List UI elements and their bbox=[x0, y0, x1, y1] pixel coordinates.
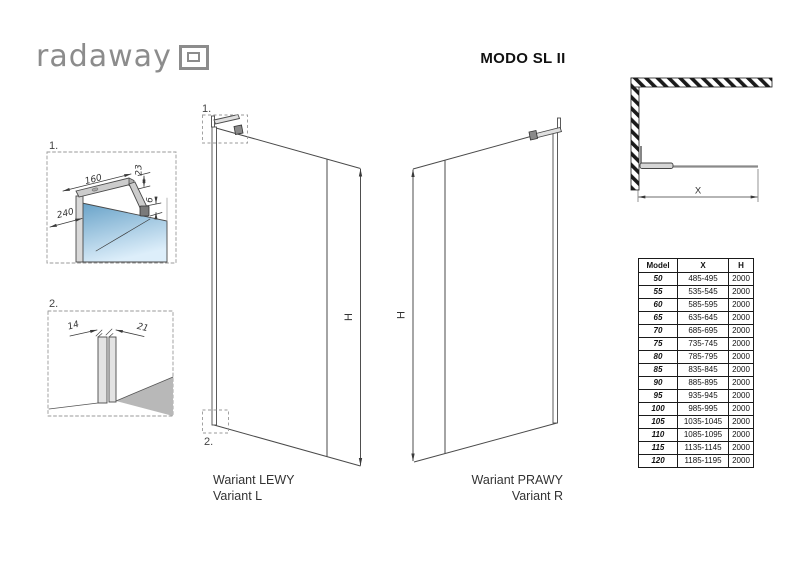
detail-1-drawing: 1. 160 23 240 bbox=[47, 140, 176, 263]
caption-variant-right-en: Variant R bbox=[420, 489, 563, 505]
dim-label-21: 21 bbox=[136, 322, 150, 334]
x-cell: 1085-1095 bbox=[678, 429, 729, 442]
dim-label-x: X bbox=[695, 186, 702, 197]
h-cell: 2000 bbox=[729, 325, 754, 338]
model-cell: 55 bbox=[639, 286, 678, 299]
h-cell: 2000 bbox=[729, 286, 754, 299]
x-cell: 1135-1145 bbox=[678, 442, 729, 455]
wall-hatch-vertical bbox=[631, 78, 639, 190]
glass-clamp bbox=[140, 206, 149, 216]
caption-variant-left-en: Variant L bbox=[213, 489, 295, 505]
h-cell: 2000 bbox=[729, 416, 754, 429]
model-cell: 90 bbox=[639, 377, 678, 390]
table-row: 95935-9452000 bbox=[639, 390, 754, 403]
caption-variant-right: Wariant PRAWY Variant R bbox=[420, 473, 563, 504]
table-row: 50485-4952000 bbox=[639, 273, 754, 286]
wall-profile bbox=[76, 196, 83, 262]
table-row: 75735-7452000 bbox=[639, 338, 754, 351]
detail-2-drawing: 2. 14 21 bbox=[48, 298, 173, 416]
model-cell: 110 bbox=[639, 429, 678, 442]
h-cell: 2000 bbox=[729, 364, 754, 377]
x-cell: 485-495 bbox=[678, 273, 729, 286]
model-cell: 115 bbox=[639, 442, 678, 455]
x-cell: 1035-1045 bbox=[678, 416, 729, 429]
model-cell: 50 bbox=[639, 273, 678, 286]
x-cell: 885-895 bbox=[678, 377, 729, 390]
col-header-model: Model bbox=[639, 259, 678, 273]
x-cell: 785-795 bbox=[678, 351, 729, 364]
dim-label-14: 14 bbox=[67, 320, 81, 333]
table-row: 85835-8452000 bbox=[639, 364, 754, 377]
bottom-profile-right bbox=[109, 337, 116, 402]
x-cell: 535-545 bbox=[678, 286, 729, 299]
bracket-top-view bbox=[640, 163, 673, 169]
model-cell: 70 bbox=[639, 325, 678, 338]
dim-label-6: 6 bbox=[146, 197, 156, 203]
h-cell: 2000 bbox=[729, 442, 754, 455]
bracket-clamp bbox=[234, 125, 243, 135]
table-row: 70685-6952000 bbox=[639, 325, 754, 338]
table-row: 65635-6452000 bbox=[639, 312, 754, 325]
dim-label-h-left: H bbox=[343, 313, 355, 321]
x-cell: 635-645 bbox=[678, 312, 729, 325]
model-cell: 80 bbox=[639, 351, 678, 364]
caption-variant-left: Wariant LEWY Variant L bbox=[213, 473, 295, 504]
model-cell: 85 bbox=[639, 364, 678, 377]
col-header-h: H bbox=[729, 259, 754, 273]
dim-label-240: 240 bbox=[56, 207, 75, 221]
caption-variant-right-pl: Wariant PRAWY bbox=[420, 473, 563, 489]
x-cell: 585-595 bbox=[678, 299, 729, 312]
table-row: 80785-7952000 bbox=[639, 351, 754, 364]
table-row: 1201185-11952000 bbox=[639, 455, 754, 468]
col-header-x: X bbox=[678, 259, 729, 273]
h-cell: 2000 bbox=[729, 273, 754, 286]
model-cell: 105 bbox=[639, 416, 678, 429]
callout-1-label: 1. bbox=[202, 103, 211, 115]
h-cell: 2000 bbox=[729, 338, 754, 351]
x-cell: 835-845 bbox=[678, 364, 729, 377]
panel-left-drawing: H 1. 2. bbox=[202, 103, 361, 466]
model-cell: 95 bbox=[639, 390, 678, 403]
bottom-profile-left bbox=[98, 337, 107, 403]
floor-plane bbox=[116, 377, 173, 416]
caption-variant-left-pl: Wariant LEWY bbox=[213, 473, 295, 489]
h-cell: 2000 bbox=[729, 377, 754, 390]
x-cell: 985-995 bbox=[678, 403, 729, 416]
table-row: 1101085-10952000 bbox=[639, 429, 754, 442]
x-cell: 735-745 bbox=[678, 338, 729, 351]
table-row: 1151135-11452000 bbox=[639, 442, 754, 455]
model-cell: 100 bbox=[639, 403, 678, 416]
x-cell: 685-695 bbox=[678, 325, 729, 338]
bracket-clamp bbox=[529, 131, 538, 141]
corner-top-view-drawing: X bbox=[631, 78, 772, 202]
h-cell: 2000 bbox=[729, 299, 754, 312]
table-header-row: Model X H bbox=[639, 259, 754, 273]
table-row: 55535-5452000 bbox=[639, 286, 754, 299]
datasheet-page: radaway MODO SL II 1. bbox=[0, 0, 800, 574]
detail-1-label: 1. bbox=[49, 140, 58, 152]
table-row: 1051035-10452000 bbox=[639, 416, 754, 429]
h-cell: 2000 bbox=[729, 390, 754, 403]
wall-hatch-horizontal bbox=[631, 78, 772, 87]
h-cell: 2000 bbox=[729, 429, 754, 442]
h-cell: 2000 bbox=[729, 455, 754, 468]
model-cell: 75 bbox=[639, 338, 678, 351]
panel-right-drawing: H bbox=[396, 118, 562, 462]
size-table: Model X H 50485-4952000 55535-5452000 60… bbox=[638, 258, 754, 468]
glass-pane bbox=[82, 203, 167, 262]
dim-label-h-right: H bbox=[396, 311, 408, 319]
x-cell: 935-945 bbox=[678, 390, 729, 403]
model-cell: 120 bbox=[639, 455, 678, 468]
table-row: 60585-5952000 bbox=[639, 299, 754, 312]
x-cell: 1185-1195 bbox=[678, 455, 729, 468]
h-cell: 2000 bbox=[729, 351, 754, 364]
table-row: 100985-9952000 bbox=[639, 403, 754, 416]
callout-2-label: 2. bbox=[204, 436, 213, 448]
model-cell: 65 bbox=[639, 312, 678, 325]
table-row: 90885-8952000 bbox=[639, 377, 754, 390]
model-cell: 60 bbox=[639, 299, 678, 312]
h-cell: 2000 bbox=[729, 312, 754, 325]
dim-label-23: 23 bbox=[135, 164, 145, 176]
h-cell: 2000 bbox=[729, 403, 754, 416]
detail-2-label: 2. bbox=[49, 298, 58, 310]
